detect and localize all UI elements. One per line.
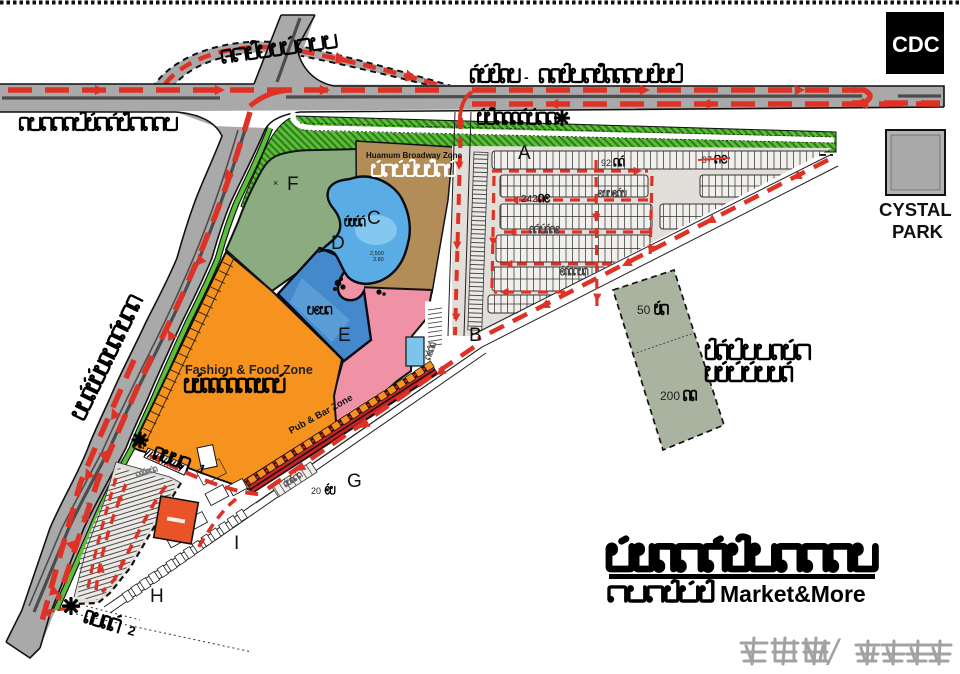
svg-text:G: G (347, 471, 362, 492)
svg-text:CDC: CDC (892, 32, 940, 57)
svg-text:200: 200 (660, 389, 680, 403)
svg-text:A: A (518, 143, 531, 164)
svg-text:20: 20 (311, 486, 321, 496)
svg-text:CYSTAL: CYSTAL (879, 199, 952, 220)
svg-text:Market&More: Market&More (720, 581, 866, 607)
svg-text:Huamum Broadway Zone: Huamum Broadway Zone (366, 151, 463, 160)
svg-text:Fashion & Food Zone: Fashion & Food Zone (185, 363, 313, 377)
svg-text:H: H (150, 586, 164, 607)
svg-text:3.80: 3.80 (373, 257, 384, 263)
svg-text:E: E (338, 325, 351, 346)
svg-text:-: - (524, 69, 529, 85)
svg-text:I: I (234, 533, 239, 554)
svg-text:D: D (331, 233, 345, 254)
svg-text:92: 92 (601, 158, 611, 168)
svg-text:242: 242 (521, 194, 538, 205)
svg-text:50: 50 (637, 303, 651, 317)
svg-text:×: × (273, 178, 278, 188)
svg-text:F: F (287, 174, 299, 195)
svg-text:×: × (317, 244, 322, 254)
svg-text:PARK: PARK (892, 221, 944, 242)
svg-text:B: B (469, 325, 482, 346)
svg-text:C: C (367, 208, 381, 229)
